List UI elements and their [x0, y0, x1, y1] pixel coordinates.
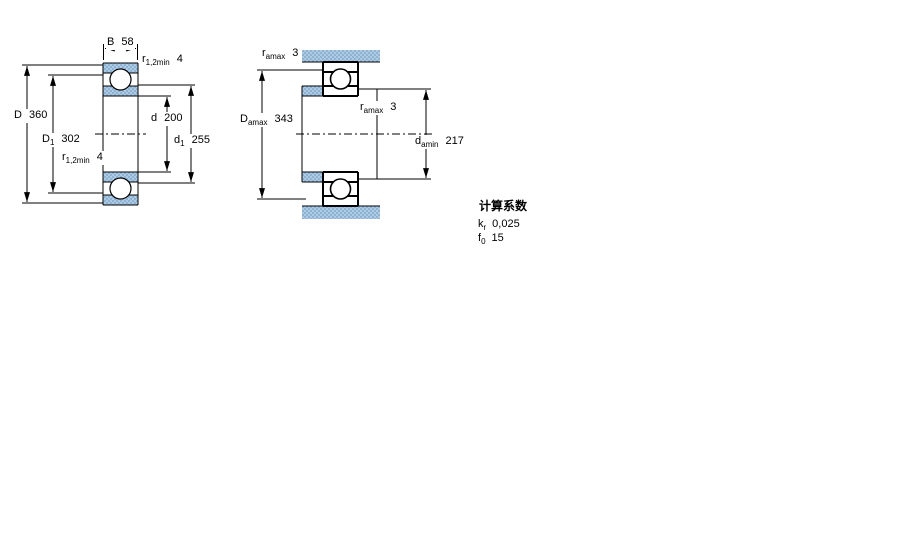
factor-value: 0,025 [492, 218, 520, 230]
calculation-factors-title: 计算系数 [479, 197, 527, 214]
dim-value: 58 [121, 36, 133, 48]
dim-label-Damax: Damax343 [239, 113, 294, 127]
ball2-bottom [331, 179, 351, 199]
dim-value: 302 [61, 133, 79, 145]
dim-label-damin: damin217 [414, 135, 465, 149]
dim-value: 360 [29, 109, 47, 121]
dim-label-r12min-bottom: r1,2min4 [61, 151, 104, 165]
dim-label-ramax-top: ramax3 [261, 47, 299, 61]
dim-symbol: D [240, 113, 248, 125]
dim-label-D1: D1302 [41, 133, 81, 147]
housing-bottom [302, 206, 380, 219]
dim-label-D: D360 [13, 109, 48, 123]
dim-label-d1: d1255 [173, 134, 211, 148]
dim-subscript: amax [248, 118, 268, 127]
dim-label-r12min-top: r1,2min4 [141, 53, 184, 67]
dim-value: 3 [390, 101, 396, 113]
dim-subscript: amin [421, 140, 438, 149]
factor-row-kr: kr0,025 [478, 218, 520, 232]
dim-symbol: d [151, 112, 157, 124]
figure2-mounting-section [257, 50, 433, 219]
dim-value: 217 [445, 135, 463, 147]
factor-value: 15 [492, 232, 504, 244]
dim-subscript: 1,2min [66, 156, 90, 165]
dim-value: 4 [97, 151, 103, 163]
factor-subscript: 0 [481, 237, 485, 246]
dim-subscript: 1 [50, 138, 54, 147]
dim-symbol: D [42, 133, 50, 145]
dim-value: 200 [164, 112, 182, 124]
dim-subscript: amax [266, 52, 286, 61]
ball2-top [331, 69, 351, 89]
dim-label-d: d200 [150, 112, 183, 126]
bearing-datasheet-diagram: B58 r1,2min4 D360 D1302 r1,2min4 d200 d1… [0, 0, 900, 560]
dim-subscript: 1 [180, 139, 184, 148]
dim-symbol: D [14, 109, 22, 121]
technical-drawing [0, 0, 900, 560]
dim-value: 4 [177, 53, 183, 65]
housing-top [302, 50, 380, 62]
ball-top [110, 69, 131, 90]
shaft-shoulder-bottom [302, 172, 323, 182]
dim-value: 255 [192, 134, 210, 146]
dim-label-ramax-mid: ramax3 [359, 101, 397, 115]
ball-bottom [110, 178, 131, 199]
dim-symbol: B [107, 36, 114, 48]
factor-subscript: r [484, 223, 487, 232]
dim-value: 343 [275, 113, 293, 125]
factor-row-f0: f015 [478, 232, 504, 246]
dim-label-B: B58 [106, 36, 135, 50]
shaft-shoulder-top [302, 86, 323, 96]
dim-subscript: amax [364, 106, 384, 115]
dim-d [138, 96, 171, 172]
dim-subscript: 1,2min [146, 58, 170, 67]
dim-value: 3 [292, 47, 298, 59]
